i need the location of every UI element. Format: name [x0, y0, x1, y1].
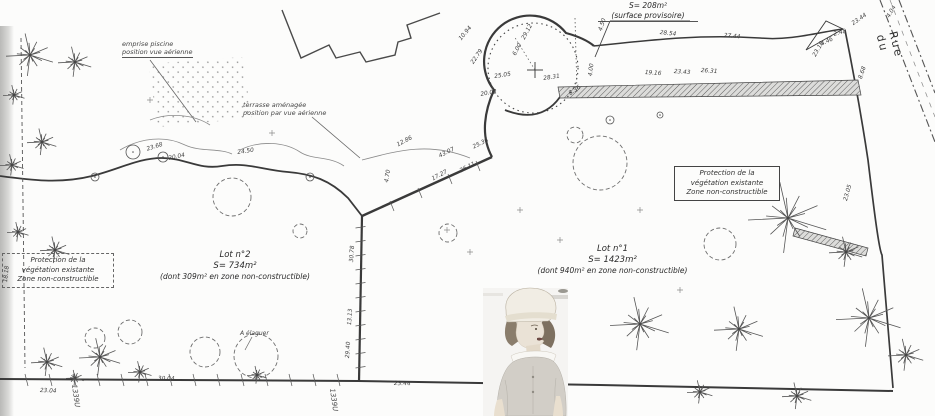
grass-plus-mark	[517, 207, 523, 213]
grass-plus-mark	[444, 227, 450, 233]
plan-drawing	[0, 0, 935, 416]
tree-trunk-dot	[17, 231, 19, 233]
tree-trunk-dot	[256, 374, 258, 376]
street-lines	[880, 0, 935, 142]
grass-plus-mark	[637, 207, 643, 213]
small-tree-dot	[94, 176, 96, 178]
tree-trunk-dot	[738, 328, 740, 330]
tree-trunk-dot	[796, 395, 798, 397]
bush-cloud-symbol	[704, 228, 736, 260]
site-plan: S= 208m² (surface provisoire) Lot n°2 S=…	[0, 0, 935, 416]
tree-trunk-dot	[99, 356, 101, 358]
tree-trunk-dot	[845, 251, 847, 253]
bush-cloud-symbol	[118, 320, 142, 344]
tree-trunk-dot	[54, 249, 56, 251]
small-tree-dot	[132, 151, 134, 153]
small-tree-dot	[609, 119, 611, 121]
bush-cloud-symbol	[213, 178, 251, 216]
circle-radius-dotted	[514, 36, 535, 70]
bush-cloud-symbol	[573, 136, 627, 190]
tree-trunk-dot	[139, 371, 141, 373]
tree-trunk-dot	[11, 164, 13, 166]
terrace-leader-line	[312, 117, 360, 158]
bush-cloud-symbol	[439, 224, 457, 242]
wall-hatched-east	[793, 228, 868, 256]
zone-limit-dashed-west	[21, 38, 25, 368]
tree-trunk-dot	[41, 141, 43, 143]
grass-plus-mark	[147, 97, 153, 103]
tree-trunk-dot	[29, 54, 31, 56]
tick-mark	[356, 227, 366, 229]
small-tree-dot	[309, 176, 311, 178]
inserted-photo-woman	[483, 288, 568, 416]
grass-plus-mark	[557, 237, 563, 243]
bush-cloud-symbol	[567, 127, 583, 143]
tick-mark	[356, 367, 366, 369]
bush-cloud-symbol	[293, 224, 307, 238]
tree-trunk-dot	[46, 361, 48, 363]
small-tree-dot	[162, 156, 164, 158]
building-outline	[282, 10, 440, 62]
grass-plus-mark	[677, 287, 683, 293]
grass-plus-mark	[269, 130, 275, 136]
bush-cloud-symbol	[85, 328, 105, 348]
turning-circle-dotted	[488, 23, 578, 113]
tree-trunk-dot	[74, 61, 76, 63]
tree-trunk-dot	[13, 94, 15, 96]
tree-trunk-dot	[905, 354, 907, 356]
wall-hatched-north	[558, 80, 861, 98]
grass-plus-mark	[467, 249, 473, 255]
tree-trunk-dot	[868, 317, 870, 319]
small-tree-dot	[659, 114, 661, 116]
provisional-area-leader	[595, 21, 690, 57]
prune-leader-line	[245, 337, 252, 350]
bush-cloud-symbol	[190, 337, 220, 367]
tree-trunk-dot	[699, 391, 701, 393]
tree-trunk-dot	[787, 217, 789, 219]
tree-trunk-dot	[639, 323, 641, 325]
parcel-boundaries	[0, 16, 893, 391]
lane-dotted-line	[575, 18, 577, 92]
